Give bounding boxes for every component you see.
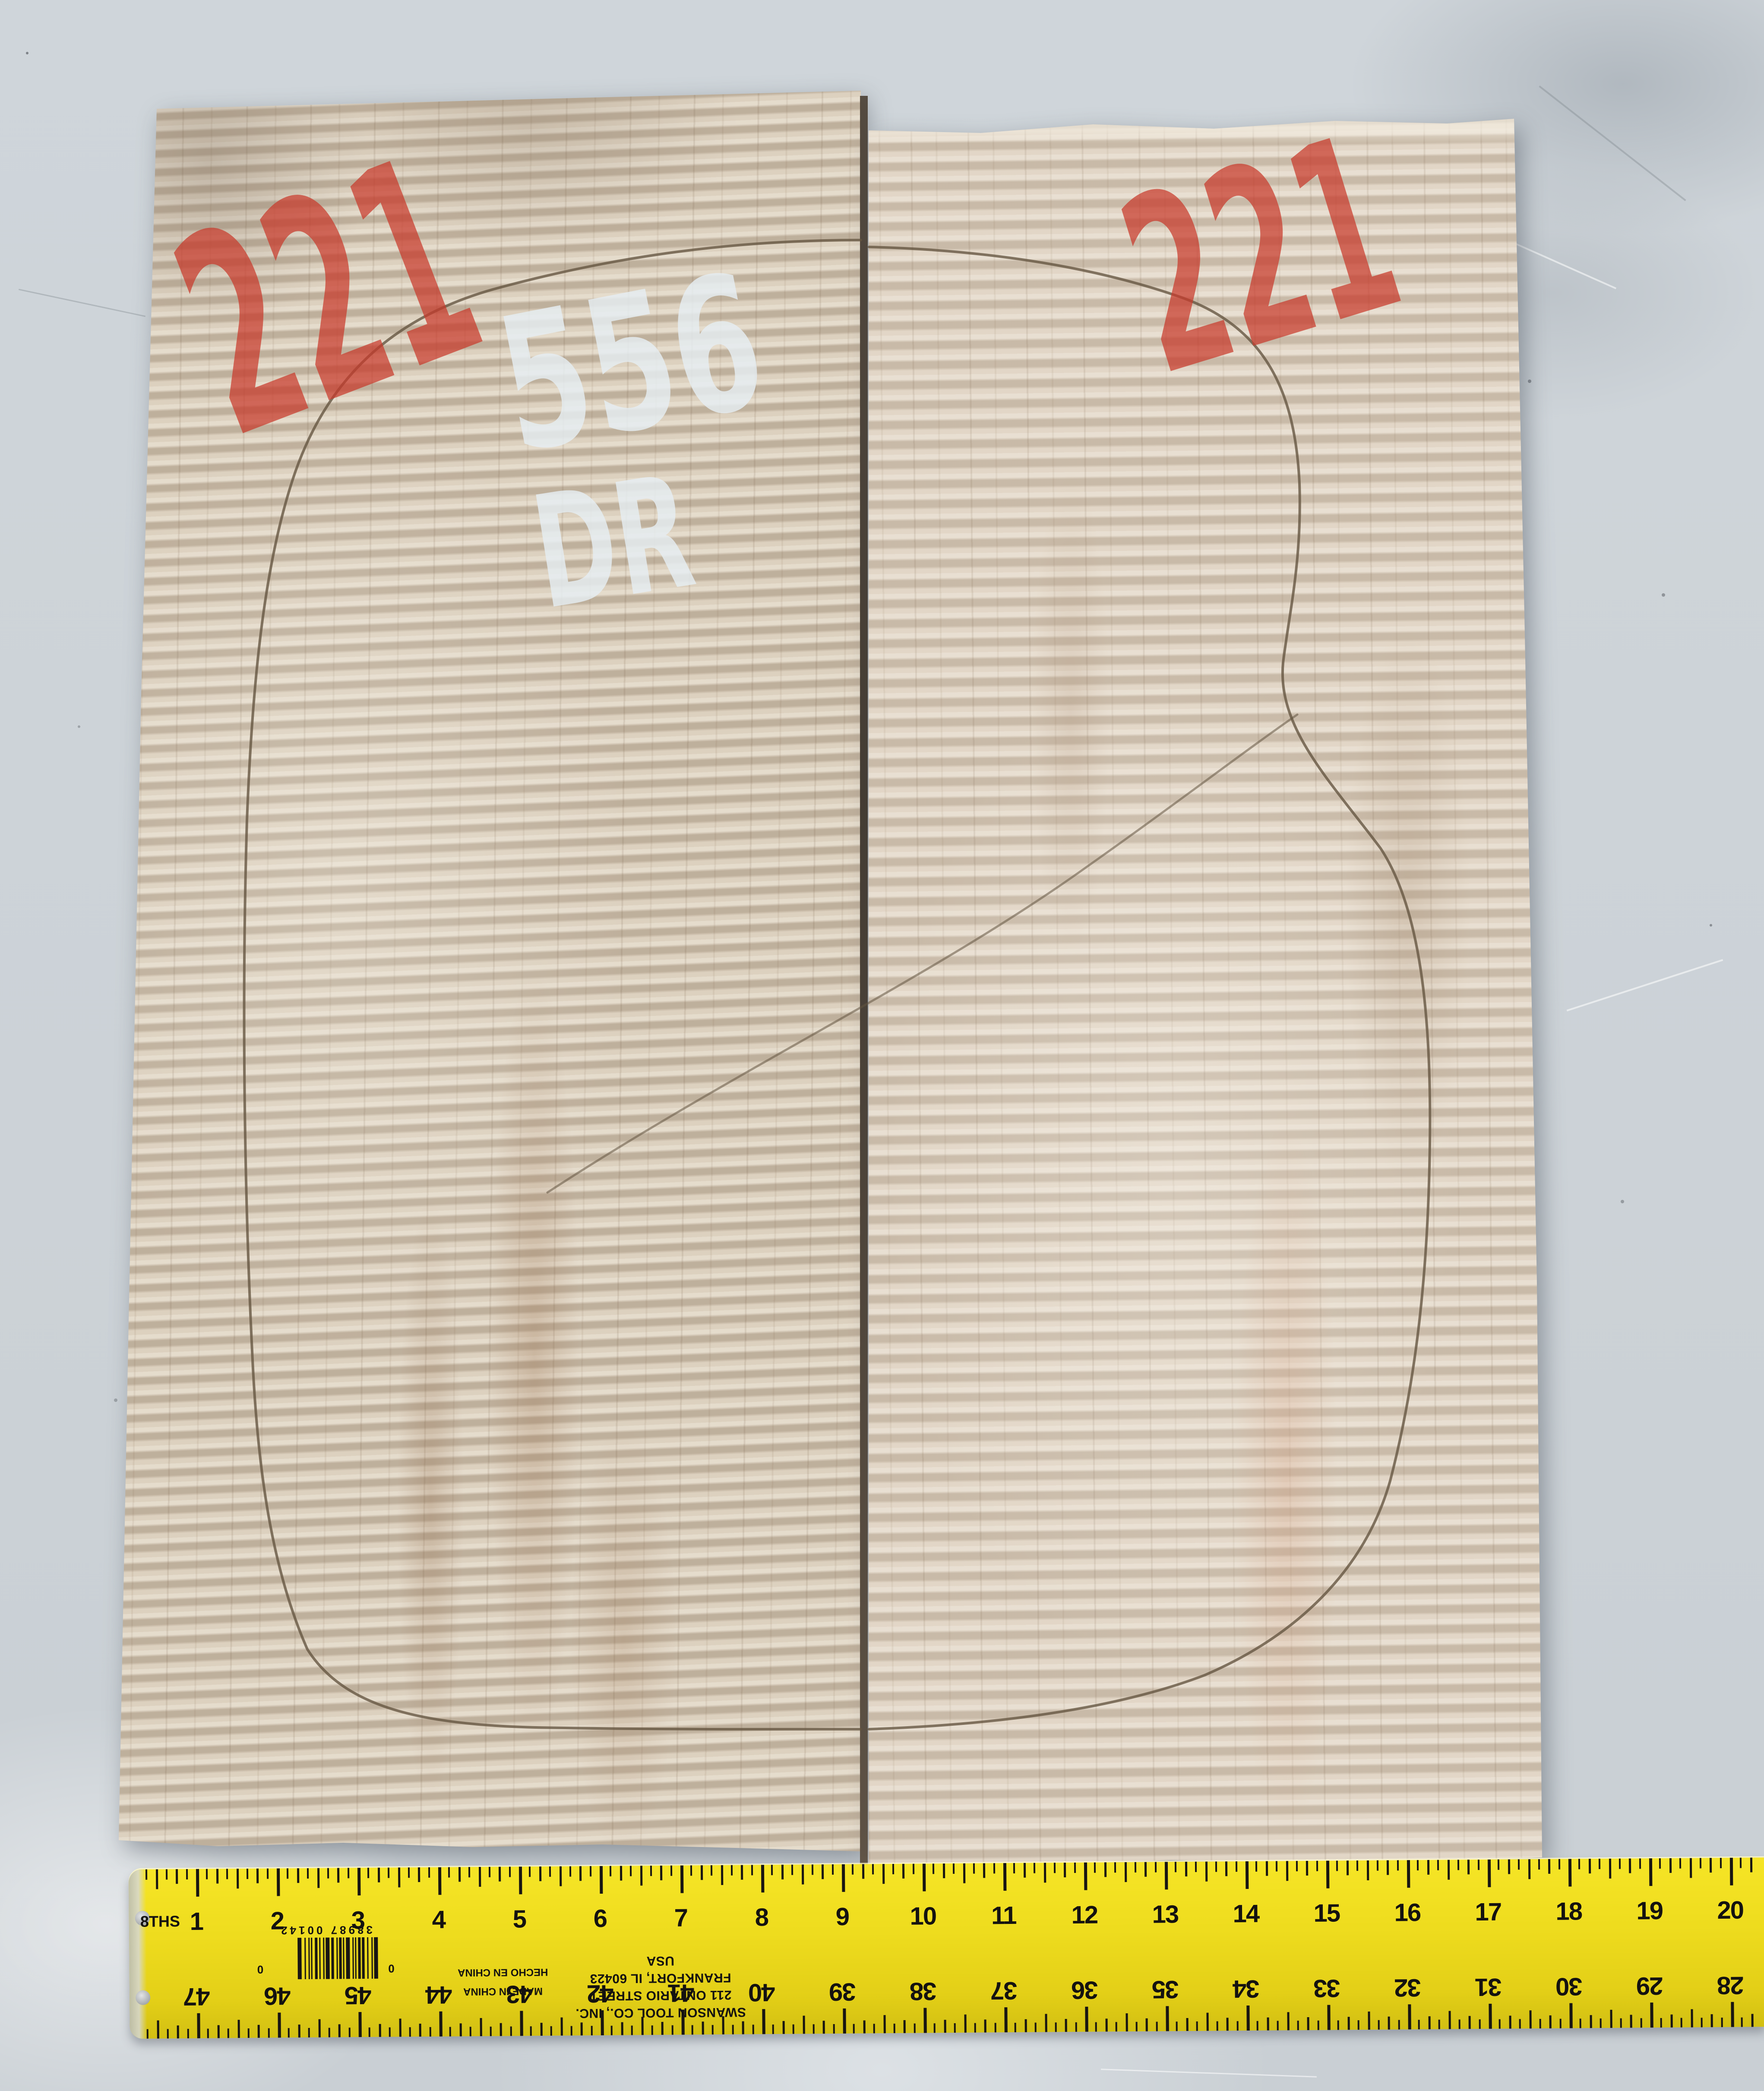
ruler-number-bottom: 47 <box>171 1982 223 2011</box>
ruler-tick-bottom <box>1590 2015 1592 2028</box>
ruler-tick-bottom <box>1368 2012 1370 2030</box>
ruler-tick-top <box>1084 1863 1087 1890</box>
ruler-tick-top <box>610 1866 611 1876</box>
brand-line-2: 211 ONTARIO STREET <box>574 1986 747 2005</box>
ruler-tick-bottom <box>1549 2015 1552 2028</box>
ruler-tick-bottom <box>1257 2021 1258 2031</box>
ruler-tick-bottom <box>500 2023 502 2036</box>
ruler-tick-top <box>1649 1858 1652 1886</box>
ruler-tick-bottom <box>863 2021 865 2034</box>
ruler-tick-top <box>1548 1859 1550 1874</box>
ruler-tick-bottom <box>1065 2019 1067 2032</box>
ruler-tick-top <box>1286 1861 1288 1881</box>
barcode-bar <box>311 1938 313 1979</box>
ruler-tick-bottom <box>1166 2006 1169 2031</box>
ruler-tick-top <box>1639 1858 1641 1869</box>
ruler-tick-bottom <box>560 2018 563 2036</box>
ruler-tick-bottom <box>217 2025 219 2038</box>
barcode-bar <box>358 1937 361 1979</box>
ruler-tick-top <box>499 1867 501 1882</box>
ruler-tick-top <box>933 1863 934 1874</box>
ruler-tick-top <box>842 1864 845 1892</box>
ruler-tick-bottom <box>540 2023 542 2036</box>
ruler-tick-top <box>1498 1860 1499 1870</box>
ruler-tick-bottom <box>379 2024 381 2037</box>
ruler-number-bottom: 36 <box>1059 1975 1111 2005</box>
ruler-number-bottom: 34 <box>1220 1974 1272 2004</box>
ruler-tick-bottom <box>803 2016 805 2034</box>
ruler-tick-bottom <box>1640 2018 1642 2028</box>
ruler-tick-bottom <box>449 2027 451 2037</box>
ruler-number-bottom: 33 <box>1301 1974 1353 2003</box>
ruler-tick-top <box>781 1865 784 1879</box>
ruler-tick-top <box>1669 1858 1672 1873</box>
ruler-tick-top <box>307 1868 309 1879</box>
ruler-tick-bottom <box>1701 2018 1703 2027</box>
ruler-tick-bottom <box>1227 2018 1229 2031</box>
ruler-tick-top <box>620 1866 622 1881</box>
ruler-tick-bottom <box>1347 2017 1350 2030</box>
barcode-bar <box>343 1937 345 1979</box>
ruler-tick-top <box>1336 1860 1338 1871</box>
ruler-tick-bottom <box>248 2028 250 2038</box>
ruler-tick-top <box>1538 1859 1540 1870</box>
ruler-tick-bottom <box>823 2021 825 2034</box>
ruler-tick-bottom <box>1327 2005 1330 2030</box>
ruler-tick-top <box>1347 1860 1349 1875</box>
ruler-tick-top <box>1679 1858 1681 1869</box>
ruler-tick-top <box>1619 1859 1621 1869</box>
ruler-tick-top <box>1629 1858 1631 1873</box>
ruler-tick-top <box>993 1863 995 1873</box>
ruler-tick-top <box>1518 1859 1520 1870</box>
ruler-tick-bottom <box>318 2019 320 2037</box>
ruler-tick-bottom <box>944 2020 946 2033</box>
ruler-tick-bottom <box>429 2027 431 2037</box>
ruler-tick-top <box>943 1863 945 1878</box>
ruler-tick-top <box>176 1869 178 1884</box>
ruler-tick-top <box>1064 1863 1066 1877</box>
ruler-tick-bottom <box>923 2008 926 2033</box>
ruler-barcode: 38987 00142 0 0 <box>272 1923 380 1980</box>
board-right-wrap <box>869 117 1542 1866</box>
ruler-tick-top <box>1417 1860 1419 1870</box>
ruler-tick-top <box>1710 1858 1712 1873</box>
barcode-bar <box>326 1938 330 1979</box>
ruler-tick-bottom <box>1095 2022 1097 2032</box>
barcode-bar <box>336 1937 338 1979</box>
ruler-tick-bottom <box>934 2023 936 2033</box>
ruler-tick-top <box>145 1870 147 1880</box>
ruler-tick-top <box>408 1867 410 1878</box>
ruler-tick-top <box>1457 1860 1459 1870</box>
ruler-number-bottom: 37 <box>978 1976 1030 2006</box>
ruler-tick-top <box>1387 1860 1389 1875</box>
ruler-number-bottom: 46 <box>252 1981 303 2011</box>
ruler-tick-top <box>509 1867 511 1877</box>
ruler-number-top: 19 <box>1624 1896 1675 1926</box>
ruler-tick-top <box>1276 1861 1277 1871</box>
ruler-tick-bottom <box>389 2028 391 2037</box>
ruler-number-bottom: 32 <box>1382 1973 1434 2002</box>
ruler-tick-top <box>963 1863 965 1883</box>
ruler-number-top: 17 <box>1462 1897 1514 1927</box>
ruler-number-bottom: 38 <box>898 1977 949 2006</box>
ruler-tick-top <box>801 1865 803 1885</box>
ruler-tick-bottom <box>419 2024 421 2037</box>
ruler-tick-bottom <box>732 2025 734 2034</box>
barcode-bar <box>355 1937 357 1979</box>
ruler-tick-top <box>1528 1859 1530 1879</box>
ruler-tick-top <box>771 1865 773 1875</box>
ruler-number-bottom: 30 <box>1543 1972 1595 2001</box>
ruler-tick-top <box>1599 1859 1600 1869</box>
ruler-tick-bottom <box>1287 2012 1289 2030</box>
ruler-tick-top <box>519 1866 522 1894</box>
ruler-tick-bottom <box>843 2009 846 2034</box>
ruler-tick-top <box>882 1864 884 1884</box>
ruler-tick-top <box>549 1866 551 1877</box>
ruler-number-top: 16 <box>1381 1898 1433 1927</box>
barcode-bar <box>339 1937 342 1979</box>
ruler-tick-top <box>832 1864 834 1875</box>
ruler-tick-top <box>1750 1857 1752 1872</box>
ruler-tick-bottom <box>1438 2020 1440 2029</box>
ruler-tick-bottom <box>1559 2019 1561 2028</box>
ruler-tick-bottom <box>278 2012 281 2037</box>
ruler-tick-top <box>367 1868 369 1878</box>
ruler-tick-top <box>1609 1859 1611 1879</box>
ruler-tick-bottom <box>1186 2018 1188 2031</box>
ruler-tick-top <box>1559 1859 1560 1870</box>
brand-line-1: SWANSON TOOL CO., INC. <box>574 2003 747 2022</box>
ruler-tick-top <box>337 1868 339 1882</box>
ruler-tick-bottom <box>228 2028 229 2038</box>
ruler-end-cap <box>129 1870 147 2039</box>
barcode-bar <box>331 1938 334 1979</box>
ruler-tick-bottom <box>1378 2020 1380 2030</box>
ruler-tick-bottom <box>470 2027 471 2036</box>
ruler-tick-bottom <box>1610 2010 1612 2028</box>
ruler-tick-bottom <box>883 2015 885 2033</box>
barcode-bar <box>319 1938 321 1979</box>
floor-scratch <box>1539 85 1686 201</box>
ruler-tick-top <box>1366 1860 1369 1880</box>
ruler-tick-bottom <box>1136 2022 1138 2031</box>
barcode-bar <box>297 1938 302 1979</box>
ruler-tick-bottom <box>974 2023 976 2033</box>
barcode-bar <box>315 1938 318 1979</box>
ruler-tick-bottom <box>459 2023 462 2036</box>
ruler-tick-bottom <box>1004 2007 1007 2032</box>
ruler-tick-bottom <box>1297 2021 1299 2030</box>
ruler-tick-bottom <box>480 2018 482 2036</box>
ruler-number-top: 8 <box>736 1903 787 1932</box>
ruler-tick-top <box>1488 1860 1491 1887</box>
ruler-tick-top <box>852 1864 854 1875</box>
ruler-tick-top <box>378 1868 380 1882</box>
ruler-tick-top <box>1165 1862 1168 1889</box>
ruler-tick-top <box>1427 1860 1429 1875</box>
ruler-tick-top <box>1689 1858 1691 1878</box>
ruler-tick-top <box>1104 1862 1106 1877</box>
ruler-tick-top <box>1195 1862 1197 1872</box>
ruler-tick-bottom <box>702 2021 704 2034</box>
ruler-tick-bottom <box>329 2028 330 2037</box>
ruler-tick-top <box>1467 1860 1470 1874</box>
ruler-tick-top <box>569 1866 571 1876</box>
ruler-tick-bottom <box>984 2019 986 2032</box>
ruler-tick-bottom <box>550 2026 552 2036</box>
ruler-tick-top <box>559 1866 561 1886</box>
ruler-tick-top <box>1094 1863 1096 1873</box>
ruler-tick-top <box>1578 1859 1580 1869</box>
ruler-tick-top <box>1155 1862 1157 1873</box>
ruler-tick-bottom <box>742 2021 744 2034</box>
ruler-tick-top <box>791 1865 793 1875</box>
ruler-tick-bottom <box>157 2020 159 2038</box>
ruler-tick-top <box>1185 1862 1187 1876</box>
ruler-tick-top <box>1124 1862 1126 1882</box>
ruler-tick-top <box>690 1865 692 1876</box>
ruler-tick-bottom <box>409 2027 411 2037</box>
ruler-tick-bottom <box>581 2022 583 2035</box>
ruler-tick-top <box>186 1869 188 1879</box>
ruler-tick-bottom <box>1246 2006 1249 2031</box>
ruler-tick-bottom <box>1469 2016 1471 2029</box>
barcode-bar <box>367 1937 369 1979</box>
barcode-bar <box>374 1937 378 1979</box>
ruler-tick-top <box>1356 1860 1358 1871</box>
ruler-tick-bottom <box>1711 2014 1713 2027</box>
ruler-tick-bottom <box>1388 2017 1390 2030</box>
ruler-tick-top <box>579 1866 582 1881</box>
ruler-tick-bottom <box>1519 2019 1521 2028</box>
ruler-tick-bottom <box>793 2025 794 2034</box>
ruler-tick-top <box>1024 1863 1026 1878</box>
barcode-bar <box>308 1938 310 1979</box>
tonewood-board-left <box>119 91 861 1852</box>
ruler-tick-top <box>1236 1861 1237 1872</box>
ruler-tick-bottom <box>1206 2013 1208 2031</box>
ruler-tick-top <box>388 1868 389 1878</box>
ruler-tick-bottom <box>833 2024 835 2034</box>
ruler-tick-top <box>1397 1860 1399 1870</box>
ruler-tick-top <box>1740 1858 1742 1868</box>
ruler-tick-bottom <box>308 2028 310 2037</box>
ruler-tick-top <box>1225 1861 1227 1876</box>
ruler-tick-bottom <box>1721 2018 1723 2027</box>
ruler-tick-bottom <box>1075 2022 1077 2032</box>
origin-line-1: MADE IN CHINA <box>432 1981 574 2001</box>
ruler-tick-top <box>478 1867 481 1887</box>
ruler-number-top: 15 <box>1301 1898 1353 1928</box>
ruler-tick-bottom <box>1408 2004 1411 2029</box>
ruler-tick-top <box>1326 1861 1329 1889</box>
barcode-bars <box>272 1937 380 1980</box>
ruler-tick-bottom <box>1681 2018 1682 2028</box>
ruler-tick-top <box>1054 1863 1056 1873</box>
ruler-tick-top <box>297 1868 299 1883</box>
ruler-number-top: 13 <box>1139 1900 1191 1929</box>
ruler-scale-label: 8THS <box>140 1912 180 1931</box>
brand-line-3: FRANKFORT, IL 60423 USA <box>574 1952 747 1987</box>
board-left-wrap <box>119 91 861 1852</box>
barcode-bar <box>352 1937 354 1979</box>
ruler-tick-bottom <box>1630 2015 1632 2028</box>
ruler-tick-bottom <box>1146 2018 1148 2031</box>
ruler-tick-bottom <box>207 2029 209 2038</box>
barcode-guard-left: 0 <box>388 1961 395 1975</box>
ruler-tick-top <box>1478 1860 1479 1870</box>
ruler-tick-bottom <box>1459 2019 1461 2029</box>
ruler-tick-bottom <box>197 2013 200 2038</box>
ruler-tick-bottom <box>712 2025 714 2034</box>
ruler-tick-bottom <box>1267 2018 1269 2031</box>
ruler-tick-top <box>1074 1863 1076 1873</box>
ruler-tick-bottom <box>1055 2022 1057 2032</box>
ruler-tick-top <box>1215 1862 1217 1872</box>
ruler-number-top: 5 <box>493 1904 545 1934</box>
ruler-tick-bottom <box>782 2021 784 2034</box>
ruler-tick-bottom <box>1489 2004 1492 2029</box>
ruler-tick-top <box>256 1869 259 1883</box>
ruler-tick-top <box>1659 1858 1661 1869</box>
ruler-tick-bottom <box>914 2024 915 2033</box>
ruler-tick-top <box>1255 1861 1257 1872</box>
barcode-bar <box>304 1938 306 1979</box>
ruler-tick-bottom <box>692 2025 693 2034</box>
ruler-number-top: 18 <box>1543 1897 1595 1926</box>
ruler-tick-top <box>287 1868 288 1879</box>
ruler-tick-top <box>327 1868 329 1879</box>
ruler-tick-top <box>1589 1859 1591 1873</box>
ruler-tick-bottom <box>1125 2013 1128 2031</box>
ruler-tick-top <box>1246 1861 1249 1889</box>
ruler-tick-top <box>166 1869 168 1879</box>
ruler-tick-bottom <box>621 2022 623 2035</box>
ruler-tick-top <box>1407 1860 1410 1888</box>
ruler-tick-bottom <box>1741 2018 1743 2027</box>
ruler-tick-bottom <box>1358 2020 1359 2030</box>
ruler-tick-top <box>923 1863 926 1891</box>
ruler-tick-bottom <box>651 2025 653 2035</box>
ruler-tick-top <box>1377 1860 1378 1871</box>
ruler: 1234567891011121314151617181920 47464544… <box>129 1857 1764 2039</box>
ruler-tick-top <box>872 1864 874 1874</box>
ruler-tick-bottom <box>1650 2002 1653 2028</box>
ruler-tick-bottom <box>1751 2014 1753 2027</box>
ruler-tick-top <box>277 1868 280 1896</box>
ruler-tick-bottom <box>258 2025 260 2038</box>
ruler-tick-bottom <box>1509 2016 1511 2029</box>
ruler-tick-top <box>398 1867 400 1887</box>
ruler-tick-bottom <box>520 2011 523 2036</box>
ruler-tick-top <box>348 1868 349 1878</box>
ruler-number-bottom: 39 <box>817 1977 869 2006</box>
ruler-tick-top <box>751 1865 753 1875</box>
ruler-tick-bottom <box>994 2023 996 2032</box>
tonewood-board-right <box>869 117 1542 1866</box>
ruler-number-top: 12 <box>1059 1900 1110 1930</box>
ruler-tick-top <box>670 1866 672 1876</box>
ruler-tick-bottom <box>954 2023 956 2033</box>
ruler-tick-bottom <box>490 2027 492 2036</box>
ruler-tick-top <box>1296 1861 1298 1871</box>
ruler-tick-bottom <box>1085 2007 1088 2032</box>
ruler-number-bottom: 29 <box>1624 1971 1676 2001</box>
ruler-tick-bottom <box>358 2012 361 2037</box>
ruler-tick-bottom <box>338 2024 341 2037</box>
ruler-tick-top <box>1043 1863 1046 1882</box>
ruler-tick-bottom <box>813 2024 815 2034</box>
ruler-tick-bottom <box>1307 2017 1309 2030</box>
ruler-tick-top <box>680 1866 683 1893</box>
ruler-tick-bottom <box>611 2026 613 2035</box>
ruler-tick-bottom <box>1529 2010 1531 2028</box>
ruler-tick-top <box>721 1865 723 1885</box>
ruler-number-bottom: 31 <box>1463 1972 1514 2002</box>
ruler-tick-top <box>247 1869 248 1879</box>
ruler-rivet-bottom <box>136 1990 150 2005</box>
ruler-tick-top <box>1316 1861 1318 1871</box>
barcode-bar <box>371 1937 373 1979</box>
ruler-tick-bottom <box>1479 2019 1480 2029</box>
ruler-number-top: 9 <box>816 1902 868 1931</box>
ruler-tick-bottom <box>439 2012 442 2037</box>
ruler-tick-bottom <box>187 2029 189 2038</box>
ruler-tick-bottom <box>1398 2020 1400 2029</box>
ruler-tick-bottom <box>237 2020 240 2038</box>
ruler-tick-bottom <box>591 2026 592 2035</box>
ruler-number-top: 6 <box>574 1904 626 1933</box>
ruler-tick-top <box>600 1866 603 1894</box>
floor-specks <box>26 52 28 54</box>
ruler-tick-top <box>660 1866 662 1880</box>
ruler-tick-bottom <box>1691 2009 1693 2027</box>
ruler-tick-bottom <box>510 2027 512 2036</box>
ruler-tick-bottom <box>762 2009 765 2034</box>
bookmatch-seam <box>860 96 868 1865</box>
ruler-number-top: 10 <box>897 1901 949 1931</box>
ruler-tick-top <box>902 1864 904 1879</box>
ruler-tick-top <box>590 1866 591 1876</box>
ruler-tick-bottom <box>1015 2023 1016 2032</box>
ruler-tick-top <box>539 1866 541 1881</box>
ruler-brand-text: SWANSON TOOL CO., INC. 211 ONTARIO STREE… <box>574 1952 747 2022</box>
ruler-tick-bottom <box>752 2025 754 2034</box>
ruler-tick-top <box>418 1867 420 1882</box>
ruler-tick-bottom <box>964 2015 966 2033</box>
ruler-tick-bottom <box>1600 2018 1602 2028</box>
ruler-tick-bottom <box>661 2022 664 2035</box>
ruler-tick-bottom <box>631 2025 633 2035</box>
floor-scratch <box>1101 2069 1317 2077</box>
ruler-tick-top <box>1730 1858 1733 1885</box>
ruler-number-bottom: 45 <box>332 1981 384 2010</box>
ruler-tick-bottom <box>1428 2016 1430 2029</box>
ruler-tick-bottom <box>1580 2018 1581 2028</box>
ruler-tick-bottom <box>904 2020 906 2033</box>
ruler-tick-top <box>448 1867 450 1878</box>
ruler-tick-top <box>1306 1861 1308 1876</box>
ruler-tick-top <box>711 1865 712 1876</box>
barcode-bar <box>362 1937 365 1979</box>
ruler-tick-bottom <box>1116 2022 1117 2031</box>
ruler-tick-bottom <box>1236 2021 1238 2031</box>
ruler-tick-top <box>1568 1859 1571 1887</box>
ruler-number-bottom: 35 <box>1140 1975 1192 2004</box>
